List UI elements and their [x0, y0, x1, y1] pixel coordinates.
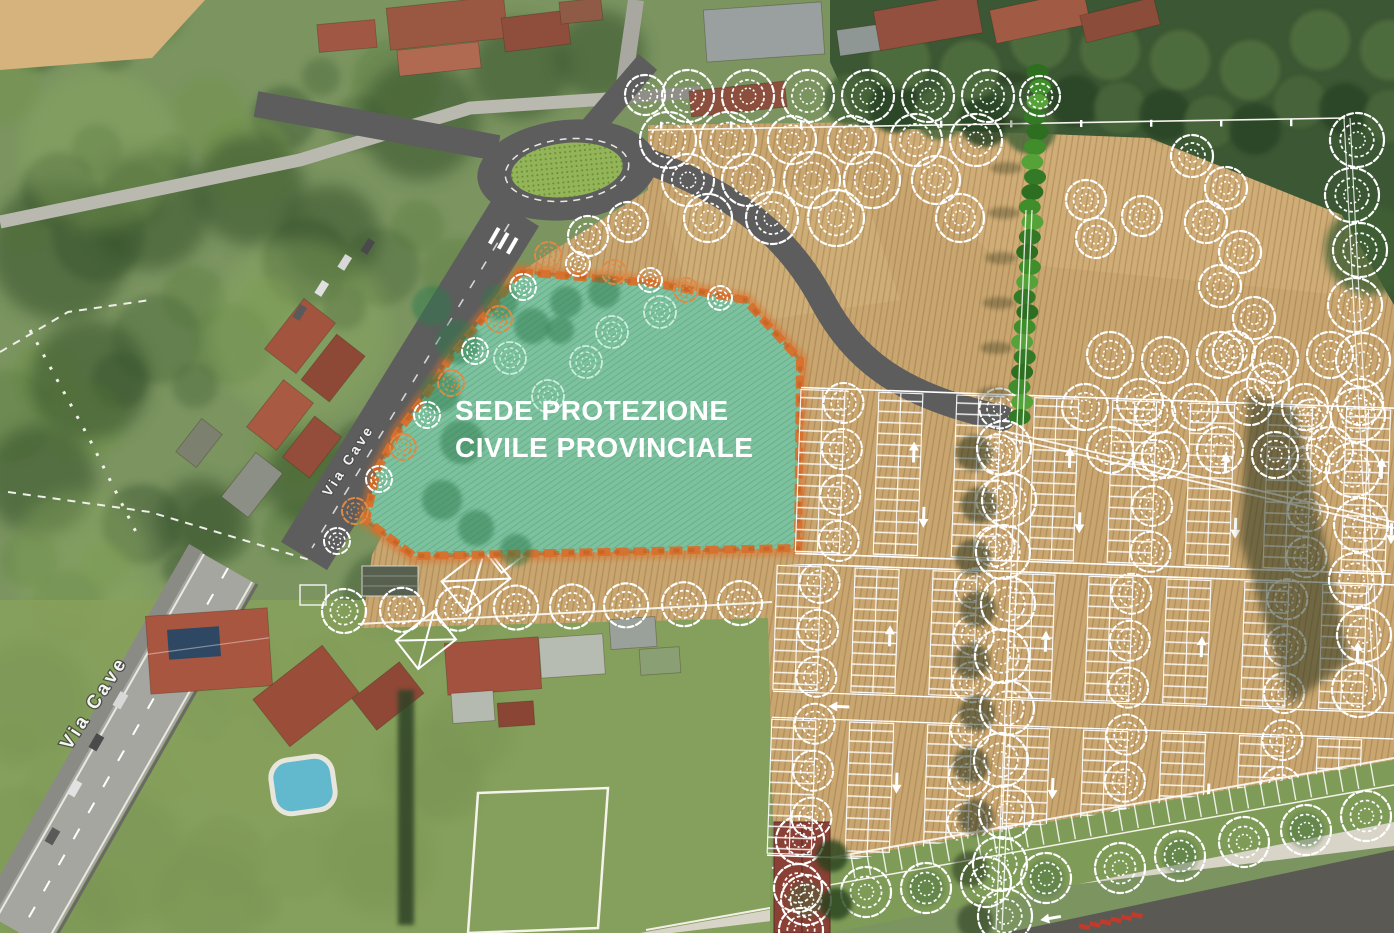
site-label-line1: SEDE PROTEZIONE: [455, 395, 729, 426]
site-label-line2: CIVILE PROVINCIALE: [455, 432, 753, 463]
aerial-site-plan: SEDE PROTEZIONE CIVILE PROVINCIALE Via C…: [0, 0, 1394, 933]
site-plan-canvas: SEDE PROTEZIONE CIVILE PROVINCIALE Via C…: [0, 0, 1394, 933]
